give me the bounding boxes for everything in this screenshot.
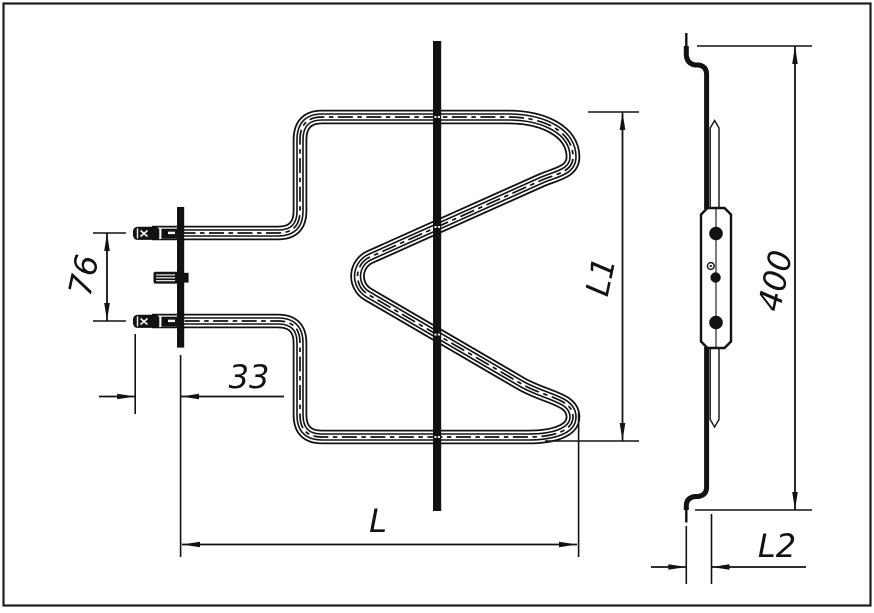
dim-label-L: L [369,502,387,540]
support-rod [433,41,441,511]
bracket-hole-bottom [709,316,723,330]
bracket-hole-top [709,227,723,241]
dimension-hook-offset-L2: L2 [651,514,806,584]
hook-top [686,46,706,209]
dim-label-400: 400 [750,247,800,315]
dimension-terminal-to-bracket: 33 [99,334,284,557]
hook-bottom [686,347,706,510]
dim-label-76: 76 [61,251,107,299]
dim-label-L1: L1 [578,254,623,299]
rod-edge-bottom [710,347,719,427]
dimension-terminal-pitch: 76 [61,233,126,321]
side-view [686,33,731,523]
dim-label-33: 33 [229,358,270,396]
heating-element-technical-drawing: 76 33 L L1 400 L2 [0,0,874,613]
side-bracket [701,208,731,348]
rod-edge-top [710,121,719,210]
dimension-height-L1: L1 [545,112,639,441]
dim-label-L2: L2 [758,527,796,565]
drawing-sheet: 76 33 L L1 400 L2 [0,0,874,613]
bracket-hole-mid [710,272,720,282]
heating-tube [152,117,573,437]
front-view [133,41,573,511]
